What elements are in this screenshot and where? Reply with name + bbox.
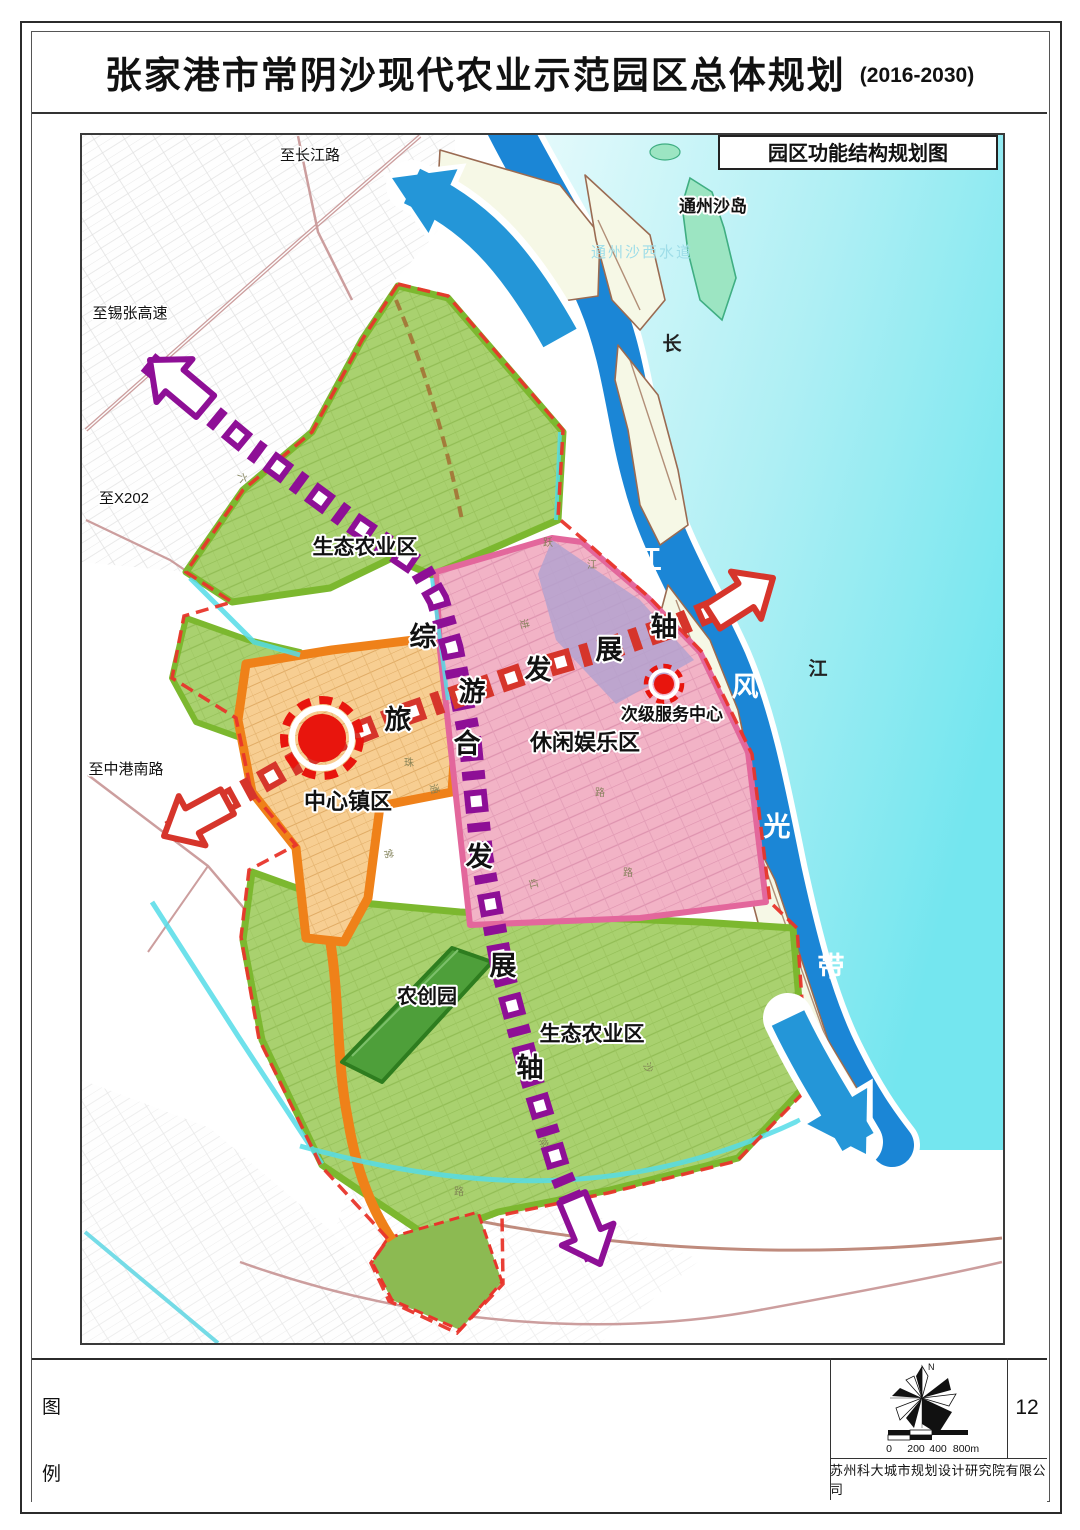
- small-island: [650, 144, 680, 160]
- road-label: 跃: [543, 537, 553, 549]
- axis-comprehensive-char: 合: [454, 728, 481, 759]
- page-title-years: (2016-2030): [860, 64, 974, 88]
- page-title: 张家港市常阴沙现代农业示范园区总体规划: [105, 45, 846, 99]
- axis-comprehensive-char: 轴: [517, 1053, 544, 1083]
- scale-tick: 800m: [953, 1443, 980, 1455]
- road-label: 江: [587, 559, 597, 571]
- scenic-belt-char: 江: [635, 545, 662, 575]
- waterway-label: 通州沙西水道: [591, 244, 693, 261]
- title-block: 张家港市常阴沙现代农业示范园区总体规划 (2016-2030): [32, 32, 1047, 114]
- zone-label-eco-south: 生态农业区: [540, 1022, 645, 1046]
- direction-xizhang-expressway: 至锡张高速: [92, 305, 167, 322]
- scenic-belt-char: 带: [818, 952, 845, 982]
- direction-zhonggang-south-road: 至中港南路: [88, 761, 163, 778]
- axis-comprehensive-char: 发: [465, 841, 493, 872]
- scale-tick: 200: [907, 1443, 925, 1455]
- zone-label-central-town: 中心镇区: [304, 789, 392, 814]
- axis-comprehensive-char: 综: [410, 621, 437, 652]
- axis-comprehensive-char: 展: [490, 951, 517, 981]
- scale-bar: 0 200 400 800m: [886, 1430, 979, 1455]
- zone-label-leisure: 休闲娱乐区: [529, 730, 640, 755]
- legend-char: 图: [42, 1392, 61, 1419]
- zone-label-secondary-center: 次级服务中心: [621, 704, 723, 724]
- scale-tick: 400: [929, 1443, 947, 1455]
- road-label: 路: [623, 866, 633, 879]
- road-label: 珠: [404, 756, 414, 769]
- axis-tourism-char: 旅: [385, 704, 412, 735]
- scenic-belt-char: 光: [763, 812, 791, 842]
- zone-label-eco-north: 生态农业区: [313, 535, 418, 559]
- river-name-char: 江: [808, 658, 827, 680]
- compass-scale-panel: N 0 200 400 800m: [830, 1358, 1007, 1458]
- legend-char: 例: [42, 1459, 61, 1486]
- map-canvas: 六 跃 江 进 珠 通 常 路 红 路 沙 常 路 至长江路 至锡张高速 至X2…: [82, 135, 1003, 1343]
- axis-tourism-char: 轴: [651, 612, 678, 642]
- road-label: 路: [454, 1185, 464, 1198]
- secondary-center-marker: [646, 666, 682, 702]
- legend-label: 图 例: [42, 1392, 61, 1486]
- compass-north-label: N: [928, 1362, 935, 1372]
- direction-x202: 至X202: [99, 490, 149, 507]
- scenic-belt-char: 沿: [573, 390, 600, 420]
- zone-label-agri-innovation: 农创园: [396, 984, 457, 1008]
- scenic-belt-char: 风: [732, 672, 759, 702]
- axis-tourism-char: 游: [459, 677, 486, 707]
- island-label: 通州沙岛: [679, 196, 747, 216]
- axis-tourism-char: 展: [596, 635, 623, 665]
- company-name: 苏州科大城市规划设计研究院有限公司: [830, 1458, 1047, 1500]
- axis-tourism-char: 发: [524, 654, 552, 685]
- river-name-char: 长: [662, 333, 682, 355]
- inset-title: 园区功能结构规划图: [768, 141, 948, 165]
- scale-tick: 0: [886, 1443, 892, 1455]
- road-label: 路: [595, 786, 605, 799]
- direction-changjiang-road: 至长江路: [280, 147, 340, 164]
- page-number: 12: [1007, 1358, 1047, 1458]
- compass-rose: N: [890, 1362, 956, 1434]
